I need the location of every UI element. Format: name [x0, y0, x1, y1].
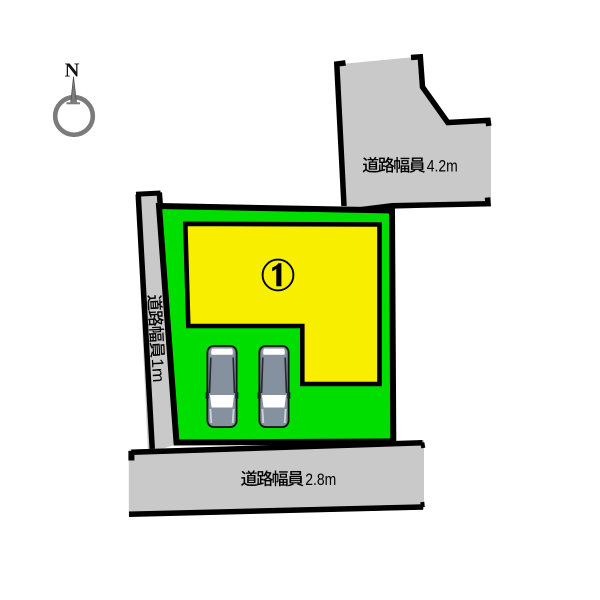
svg-text:1m: 1m [148, 358, 167, 383]
svg-text:2.8m: 2.8m [305, 471, 336, 489]
svg-text:N: N [65, 60, 80, 82]
svg-text:4.2m: 4.2m [427, 157, 458, 175]
